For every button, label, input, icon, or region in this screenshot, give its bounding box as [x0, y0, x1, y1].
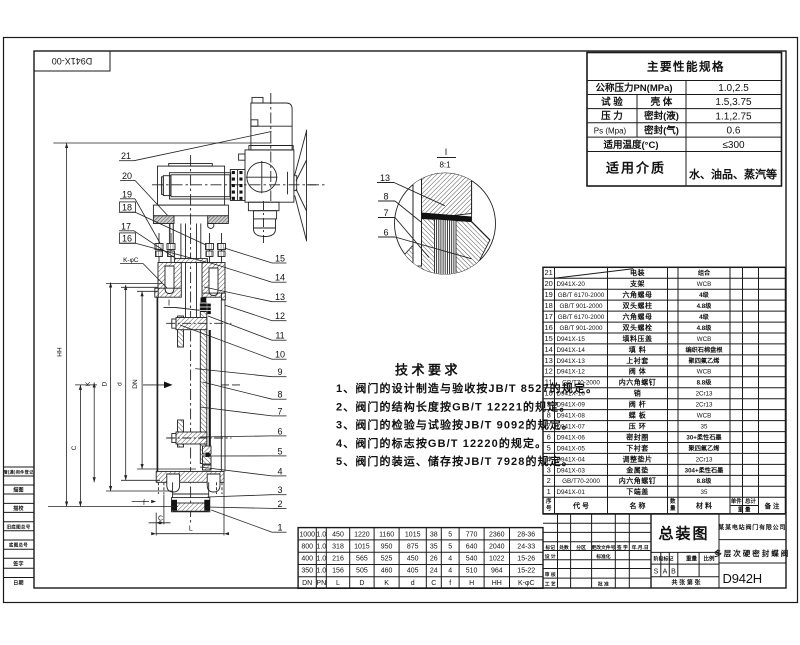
svg-text:组合: 组合: [698, 269, 711, 277]
svg-text:K-φC: K-φC: [123, 257, 139, 264]
svg-text:PN: PN: [316, 580, 326, 587]
svg-text:GB/T 901-2000: GB/T 901-2000: [560, 325, 603, 332]
svg-text:DN: DN: [132, 379, 139, 389]
svg-text:1160: 1160: [379, 531, 394, 538]
svg-text:1.5,3.75: 1.5,3.75: [715, 97, 752, 108]
svg-text:审 核: 审 核: [545, 571, 556, 578]
svg-text:d: d: [411, 580, 415, 587]
svg-text:14: 14: [545, 345, 553, 354]
svg-text:505: 505: [356, 568, 368, 575]
svg-text:重 量: 重 量: [738, 506, 751, 514]
svg-text:1.0: 1.0: [316, 543, 326, 550]
svg-text:技术要求: 技术要求: [395, 363, 461, 378]
svg-text:D942H: D942H: [723, 571, 762, 586]
svg-text:1015: 1015: [405, 531, 421, 538]
svg-text:1022: 1022: [489, 556, 505, 563]
svg-text:3、阀门的检验与试验按JB/T 9092的规定。: 3、阀门的检验与试验按JB/T 9092的规定。: [336, 418, 574, 432]
svg-text:比例: 比例: [703, 555, 715, 563]
svg-text:D941X-05: D941X-05: [557, 445, 586, 452]
svg-text:12: 12: [275, 311, 285, 321]
svg-text:15-22: 15-22: [517, 568, 535, 575]
svg-text:2: 2: [277, 499, 282, 509]
svg-text:六角螺母: 六角螺母: [623, 290, 653, 299]
svg-text:4.8级: 4.8级: [697, 324, 713, 332]
svg-text:D941X-00: D941X-00: [52, 56, 93, 66]
svg-text:旧底图总号: 旧底图总号: [7, 523, 31, 530]
svg-text:壳 体: 壳 体: [650, 96, 673, 108]
svg-text:材 料: 材 料: [695, 501, 712, 510]
svg-text:18: 18: [545, 301, 553, 310]
svg-text:450: 450: [407, 556, 419, 563]
svg-text:400: 400: [301, 556, 313, 563]
svg-text:4级: 4级: [699, 291, 709, 299]
svg-text:4: 4: [448, 568, 452, 575]
svg-text:5、阀门的装运、储存按JB/T 7928的规定。: 5、阀门的装运、储存按JB/T 7928的规定。: [336, 454, 574, 468]
svg-text:1: 1: [277, 523, 282, 533]
svg-text:D941X-03: D941X-03: [557, 467, 586, 474]
svg-text:18: 18: [122, 203, 132, 213]
svg-text:21: 21: [121, 151, 131, 161]
svg-text:19: 19: [122, 189, 132, 199]
svg-text:阀 体: 阀 体: [629, 367, 647, 376]
svg-text:4: 4: [277, 466, 282, 476]
svg-text:描校: 描校: [12, 505, 24, 512]
svg-text:1015: 1015: [354, 543, 370, 550]
svg-text:14: 14: [275, 273, 285, 283]
svg-text:15-26: 15-26: [517, 556, 535, 563]
svg-text:设 计: 设 计: [545, 553, 556, 560]
svg-text:156: 156: [332, 568, 344, 575]
svg-text:A: A: [663, 569, 668, 576]
svg-text:HH: HH: [492, 580, 502, 587]
svg-text:304+柔性石墨: 304+柔性石墨: [685, 466, 724, 474]
svg-text:支架: 支架: [629, 279, 645, 288]
svg-text:964: 964: [491, 568, 503, 575]
svg-text:2Cr13: 2Cr13: [696, 391, 713, 398]
svg-text:7: 7: [277, 406, 282, 416]
svg-text:16: 16: [122, 234, 132, 244]
svg-text:标准化: 标准化: [595, 553, 611, 560]
svg-text:聚四氟乙烯: 聚四氟乙烯: [688, 444, 721, 452]
svg-text:13: 13: [275, 292, 285, 302]
svg-text:≤300: ≤300: [722, 140, 745, 151]
svg-text:800: 800: [301, 543, 313, 550]
svg-text:8: 8: [383, 192, 388, 202]
svg-text:K: K: [384, 580, 389, 587]
svg-text:1.0: 1.0: [316, 568, 326, 575]
svg-text:28-36: 28-36: [517, 531, 535, 538]
svg-text:下衬套: 下衬套: [626, 443, 649, 452]
svg-text:5: 5: [448, 543, 452, 550]
svg-text:金属垫: 金属垫: [625, 465, 649, 474]
svg-text:C: C: [431, 580, 436, 587]
svg-text:30+柔性石墨: 30+柔性石墨: [686, 433, 722, 441]
svg-text:数: 数: [670, 497, 676, 505]
svg-text:1.1,2.75: 1.1,2.75: [715, 111, 752, 122]
svg-text:15: 15: [275, 254, 285, 264]
svg-text:适用温度(°C): 适用温度(°C): [604, 139, 659, 151]
svg-text:蝶 板: 蝶 板: [629, 411, 647, 420]
svg-text:d: d: [117, 382, 124, 386]
svg-text:2Cr13: 2Cr13: [696, 402, 713, 409]
svg-text:21: 21: [545, 268, 553, 277]
svg-text:11: 11: [275, 331, 284, 341]
svg-text:7: 7: [383, 208, 388, 218]
svg-text:D941X-01: D941X-01: [557, 489, 586, 496]
svg-text:1.0: 1.0: [316, 556, 326, 563]
svg-text:公称压力PN(MPa): 公称压力PN(MPa): [595, 82, 672, 94]
svg-text:35: 35: [701, 489, 708, 496]
svg-text:处数: 处数: [558, 544, 569, 551]
svg-text:6: 6: [277, 426, 282, 436]
svg-text:I: I: [168, 299, 170, 308]
svg-text:下端盖: 下端盖: [626, 487, 649, 496]
svg-text:底图总号: 底图总号: [9, 542, 28, 549]
svg-text:12: 12: [545, 367, 553, 376]
svg-text:13: 13: [545, 356, 553, 365]
svg-text:770: 770: [466, 531, 478, 538]
svg-text:GB/T70-2000: GB/T70-2000: [562, 478, 600, 485]
svg-text:24: 24: [430, 568, 438, 575]
svg-text:950: 950: [381, 543, 393, 550]
svg-text:量: 量: [670, 504, 676, 512]
svg-text:405: 405: [407, 568, 419, 575]
svg-text:密封(液): 密封(液): [643, 110, 679, 122]
svg-text:多层次硬密封蝶阀: 多层次硬密封蝶阀: [714, 548, 790, 558]
svg-text:电装: 电装: [630, 268, 645, 277]
svg-text:26: 26: [430, 556, 438, 563]
svg-text:批 准: 批 准: [598, 581, 609, 588]
svg-text:签 字: 签 字: [616, 544, 628, 551]
svg-text:450: 450: [332, 531, 344, 538]
svg-text:代 号: 代 号: [572, 501, 589, 510]
svg-text:35: 35: [430, 543, 438, 550]
svg-text:D941X-13: D941X-13: [557, 358, 586, 365]
svg-text:号: 号: [546, 504, 552, 512]
svg-text:8: 8: [277, 390, 282, 400]
svg-text:签字: 签字: [12, 560, 24, 567]
svg-text:565: 565: [356, 556, 368, 563]
svg-text:阀 杆: 阀 杆: [629, 400, 646, 409]
svg-text:1.0: 1.0: [316, 531, 326, 538]
svg-text:1000: 1000: [299, 531, 315, 538]
svg-text:共 张 第 张: 共 张 第 张: [671, 579, 701, 587]
svg-text:序: 序: [545, 497, 552, 505]
svg-text:f: f: [449, 580, 451, 587]
svg-text:318: 318: [332, 543, 344, 550]
svg-text:WCB: WCB: [697, 369, 711, 376]
svg-text:5: 5: [448, 531, 452, 538]
svg-text:D941X-15: D941X-15: [557, 336, 586, 343]
svg-text:名 称: 名 称: [630, 501, 646, 510]
svg-text:D: D: [359, 580, 364, 587]
svg-text:350: 350: [301, 568, 313, 575]
svg-text:填料压盖: 填料压盖: [623, 334, 653, 343]
svg-text:编织石棉盘根: 编织石棉盘根: [685, 346, 723, 354]
svg-text:L: L: [189, 526, 193, 533]
svg-text:更改文件号: 更改文件号: [591, 544, 615, 551]
svg-text:单件: 单件: [731, 497, 743, 505]
svg-text:1.0,2.5: 1.0,2.5: [718, 83, 749, 94]
svg-text:D941X-14: D941X-14: [557, 347, 586, 354]
svg-text:L: L: [336, 580, 340, 587]
svg-text:某某电站阀门有限公司: 某某电站阀门有限公司: [718, 524, 786, 532]
svg-text:4.8级: 4.8级: [697, 302, 713, 310]
svg-text:216: 216: [332, 556, 344, 563]
svg-text:Ps (Mpa): Ps (Mpa): [594, 127, 627, 136]
svg-text:D: D: [101, 381, 108, 386]
svg-text:总计: 总计: [745, 497, 757, 505]
svg-text:8.8级: 8.8级: [697, 477, 713, 485]
svg-text:38: 38: [430, 531, 438, 538]
svg-text:9: 9: [277, 367, 282, 377]
svg-text:540: 540: [466, 556, 478, 563]
svg-text:20: 20: [122, 171, 132, 181]
svg-text:工 艺: 工 艺: [545, 581, 556, 588]
svg-text:DN: DN: [302, 580, 312, 587]
svg-text:16: 16: [545, 323, 553, 332]
svg-text:密封圈: 密封圈: [626, 432, 649, 441]
svg-text:I: I: [445, 147, 448, 157]
svg-text:内六角螺钉: 内六角螺钉: [619, 378, 657, 387]
svg-text:年.月.日: 年.月.日: [632, 544, 649, 551]
svg-text:4、阀门的标志按GB/T 12220的规定。: 4、阀门的标志按GB/T 12220的规定。: [336, 436, 547, 450]
svg-text:GB/T 6170-2000: GB/T 6170-2000: [558, 314, 605, 321]
svg-text:4: 4: [448, 556, 452, 563]
svg-text:1220: 1220: [354, 531, 370, 538]
svg-text:聚四氟乙烯: 聚四氟乙烯: [688, 357, 721, 365]
svg-text:2、阀门的结构长度按GB/T 12221的规定。: 2、阀门的结构长度按GB/T 12221的规定。: [336, 399, 571, 413]
svg-text:5: 5: [277, 446, 282, 456]
svg-text:阶段标记: 阶段标记: [653, 556, 673, 563]
svg-text:20: 20: [545, 279, 553, 288]
svg-text:17: 17: [545, 312, 553, 321]
svg-text:1、阀门的设计制造与验收按JB/T 8527的规定。: 1、阀门的设计制造与验收按JB/T 8527的规定。: [336, 381, 598, 395]
svg-text:日期: 日期: [13, 580, 24, 587]
svg-text:35: 35: [701, 423, 708, 430]
svg-text:D941X-06: D941X-06: [557, 434, 586, 441]
svg-text:875: 875: [407, 543, 419, 550]
svg-text:试 验: 试 验: [601, 96, 623, 108]
svg-text:C: C: [71, 445, 78, 450]
svg-text:2Cr13: 2Cr13: [696, 456, 713, 463]
svg-text:双头螺柱: 双头螺柱: [623, 301, 653, 310]
svg-text:K-φC: K-φC: [518, 580, 535, 587]
svg-text:标记: 标记: [544, 544, 555, 551]
svg-text:六角螺母: 六角螺母: [623, 312, 653, 321]
svg-text:主要性能规格: 主要性能规格: [647, 60, 725, 74]
svg-text:HH: HH: [57, 347, 64, 357]
svg-text:适用介质: 适用介质: [606, 161, 666, 176]
svg-text:GB/T 901-2000: GB/T 901-2000: [560, 303, 603, 310]
svg-text:销: 销: [633, 389, 642, 398]
svg-text:调整垫片: 调整垫片: [623, 454, 653, 463]
svg-text:D941X-08: D941X-08: [557, 413, 586, 420]
svg-text:GB/T 6170-2000: GB/T 6170-2000: [558, 292, 605, 299]
svg-text:总装图: 总装图: [658, 525, 709, 543]
svg-text:460: 460: [381, 568, 393, 575]
svg-text:双头螺栓: 双头螺栓: [623, 323, 653, 332]
svg-text:填 料: 填 料: [629, 345, 646, 354]
svg-text:15: 15: [545, 334, 553, 343]
svg-text:WCB: WCB: [697, 281, 711, 288]
svg-text:D941X-12: D941X-12: [557, 369, 586, 376]
svg-text:10: 10: [275, 350, 285, 360]
svg-text:640: 640: [466, 543, 478, 550]
svg-text:24-33: 24-33: [517, 543, 535, 550]
svg-text:8.8级: 8.8级: [697, 379, 713, 387]
svg-text:0.6: 0.6: [727, 126, 741, 137]
svg-text:密封(气): 密封(气): [643, 124, 679, 136]
svg-text:510: 510: [466, 568, 478, 575]
svg-text:水、油品、蒸汽等: 水、油品、蒸汽等: [689, 167, 777, 181]
svg-text:K: K: [85, 381, 92, 386]
svg-text:2040: 2040: [489, 543, 505, 550]
svg-text:19: 19: [545, 290, 553, 299]
svg-text:f: f: [143, 500, 145, 507]
svg-text:重量: 重量: [686, 555, 698, 563]
svg-text:备 注: 备 注: [764, 501, 780, 510]
svg-text:2: 2: [547, 476, 551, 485]
svg-text:17: 17: [121, 221, 131, 231]
svg-text:2360: 2360: [489, 531, 505, 538]
svg-text:4级: 4级: [699, 313, 709, 321]
svg-text:1: 1: [547, 487, 551, 496]
svg-text:描图: 描图: [12, 487, 24, 494]
svg-text:13: 13: [380, 173, 390, 183]
svg-text:分区: 分区: [576, 544, 586, 551]
svg-text:H: H: [469, 580, 474, 587]
svg-text:D941X-20: D941X-20: [557, 281, 586, 288]
svg-text:WCB: WCB: [697, 336, 711, 343]
svg-text:WCB: WCB: [697, 413, 711, 420]
svg-text:上衬套: 上衬套: [626, 356, 649, 365]
svg-text:B: B: [671, 569, 676, 576]
svg-text:525: 525: [381, 556, 393, 563]
svg-text:压 环: 压 环: [629, 421, 646, 430]
svg-text:6: 6: [383, 228, 388, 238]
svg-text:3: 3: [277, 485, 282, 495]
svg-text:借(通)用件登记: 借(通)用件登记: [2, 468, 34, 475]
svg-text:压 力: 压 力: [601, 110, 623, 122]
svg-text:S: S: [654, 569, 659, 576]
svg-text:内六角螺钉: 内六角螺钉: [619, 476, 657, 485]
svg-text:8:1: 8:1: [439, 161, 451, 170]
